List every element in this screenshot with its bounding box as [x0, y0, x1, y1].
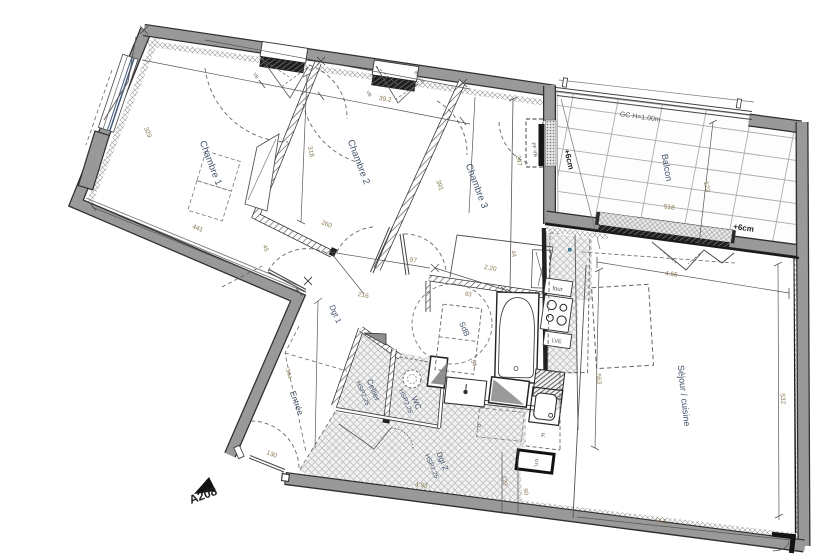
svg-text:532: 532 [778, 393, 786, 405]
svg-text:P: P [477, 424, 482, 431]
svg-text:563: 563 [594, 373, 602, 385]
